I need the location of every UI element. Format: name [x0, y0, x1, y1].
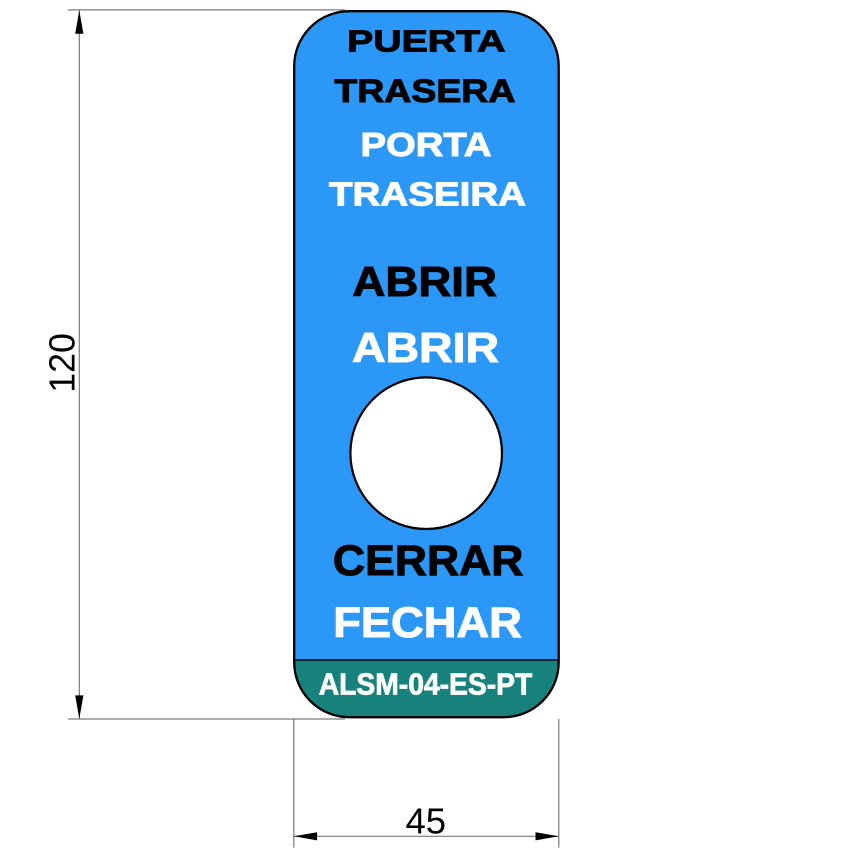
svg-text:45: 45	[405, 800, 446, 841]
svg-text:ABRIR: ABRIR	[352, 324, 499, 371]
svg-text:PUERTA: PUERTA	[347, 23, 506, 58]
svg-text:TRASERA: TRASERA	[334, 73, 515, 109]
svg-text:ABRIR: ABRIR	[352, 258, 497, 305]
svg-text:CERRAR: CERRAR	[333, 537, 524, 584]
svg-text:ALSM-04-ES-PT: ALSM-04-ES-PT	[319, 666, 533, 701]
svg-text:TRASEIRA: TRASEIRA	[329, 177, 526, 214]
svg-text:120: 120	[43, 333, 83, 393]
svg-text:FECHAR: FECHAR	[333, 599, 522, 646]
svg-text:PORTA: PORTA	[361, 127, 492, 164]
